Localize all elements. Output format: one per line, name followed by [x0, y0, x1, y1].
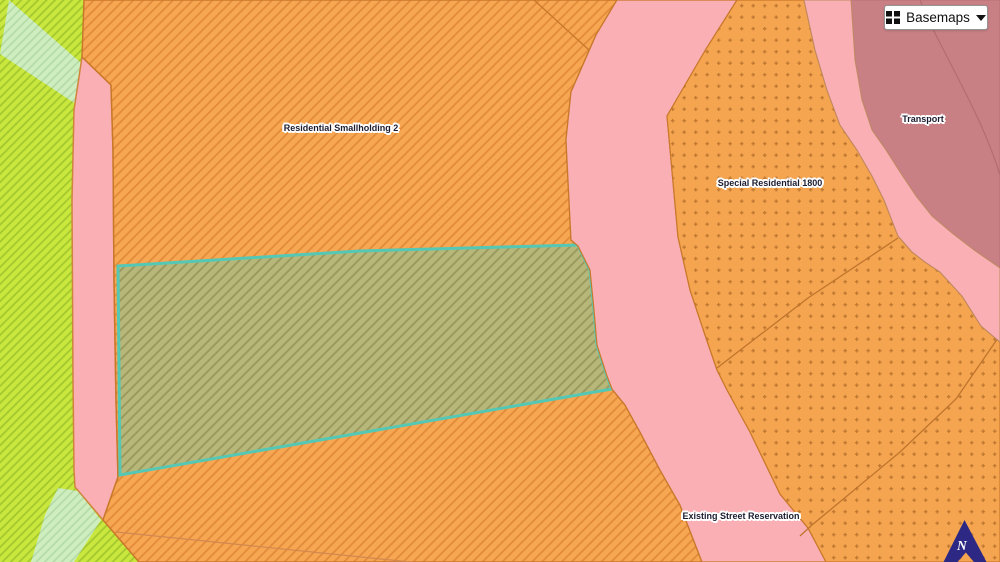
svg-text:N: N: [956, 538, 968, 553]
